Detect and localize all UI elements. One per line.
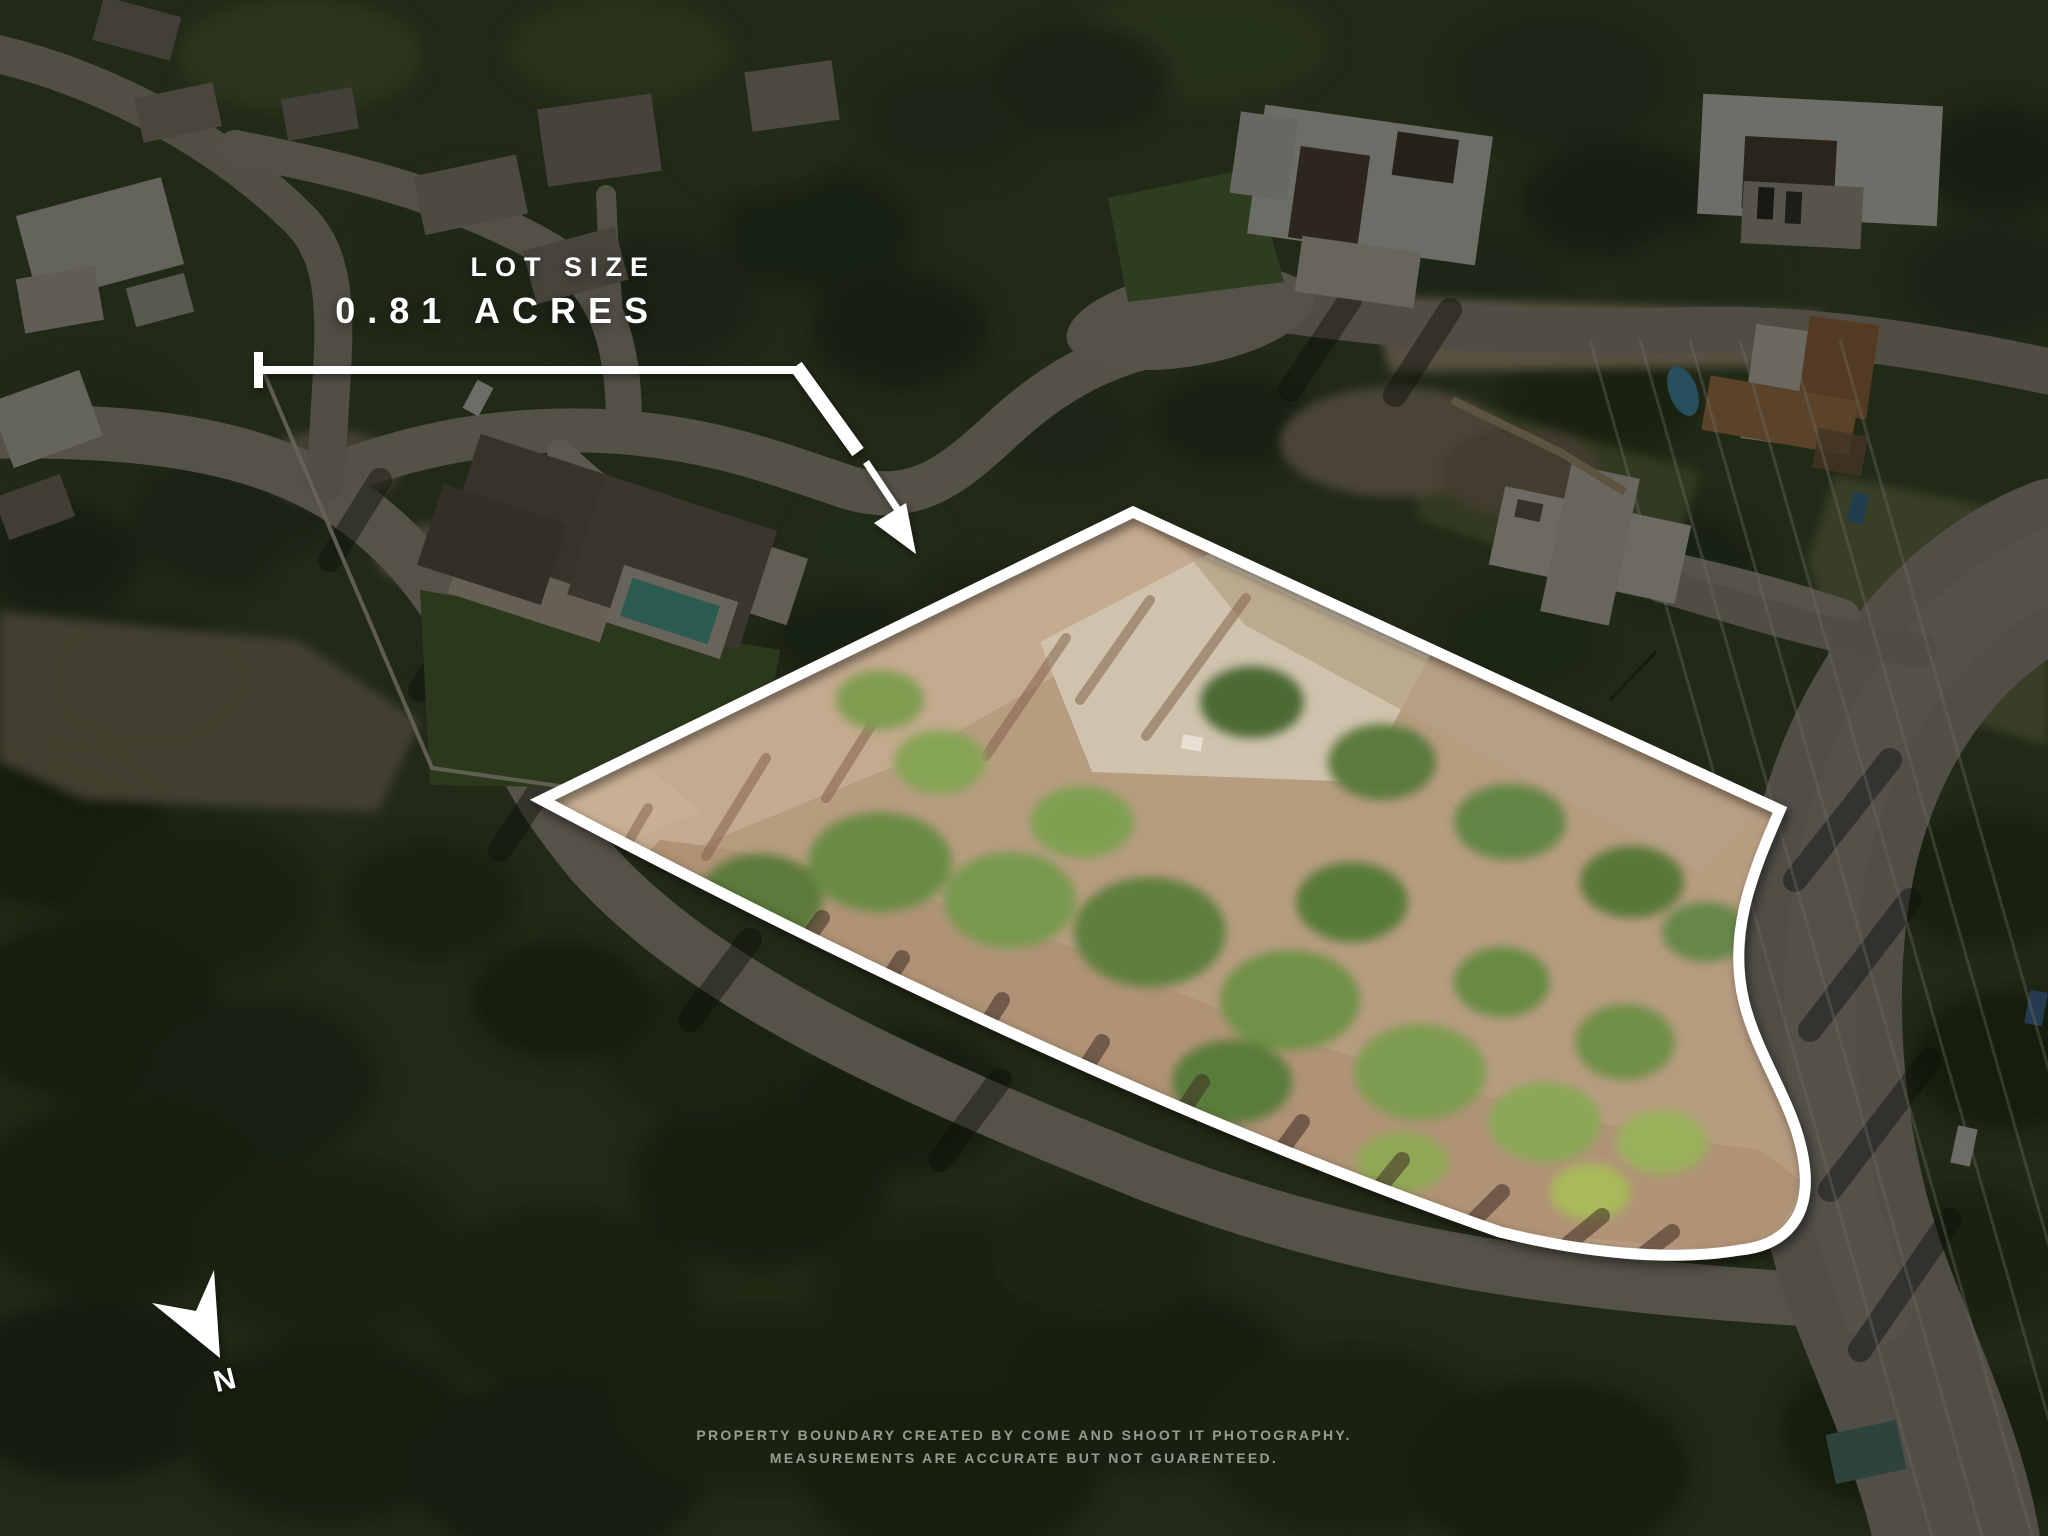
measure-callout: [254, 352, 916, 554]
annotation-layer: [0, 0, 2048, 1536]
disclaimer: PROPERTY BOUNDARY CREATED BY COME AND SH…: [0, 1424, 2048, 1470]
pointer-arrowhead-icon: [874, 503, 916, 554]
disclaimer-line-2: MEASUREMENTS ARE ACCURATE BUT NOT GUAREN…: [0, 1447, 2048, 1470]
lot-size-label: LOT SIZE: [335, 252, 656, 282]
north-arrow-icon: [152, 1270, 220, 1358]
disclaimer-line-1: PROPERTY BOUNDARY CREATED BY COME AND SH…: [0, 1424, 2048, 1447]
aerial-photo-page: LOT SIZE 0.81 ACRES N PROPERTY BOUNDARY …: [0, 0, 2048, 1536]
lot-size-value: 0.81 ACRES: [335, 291, 660, 331]
lot-size-callout: LOT SIZE 0.81 ACRES: [335, 252, 648, 332]
